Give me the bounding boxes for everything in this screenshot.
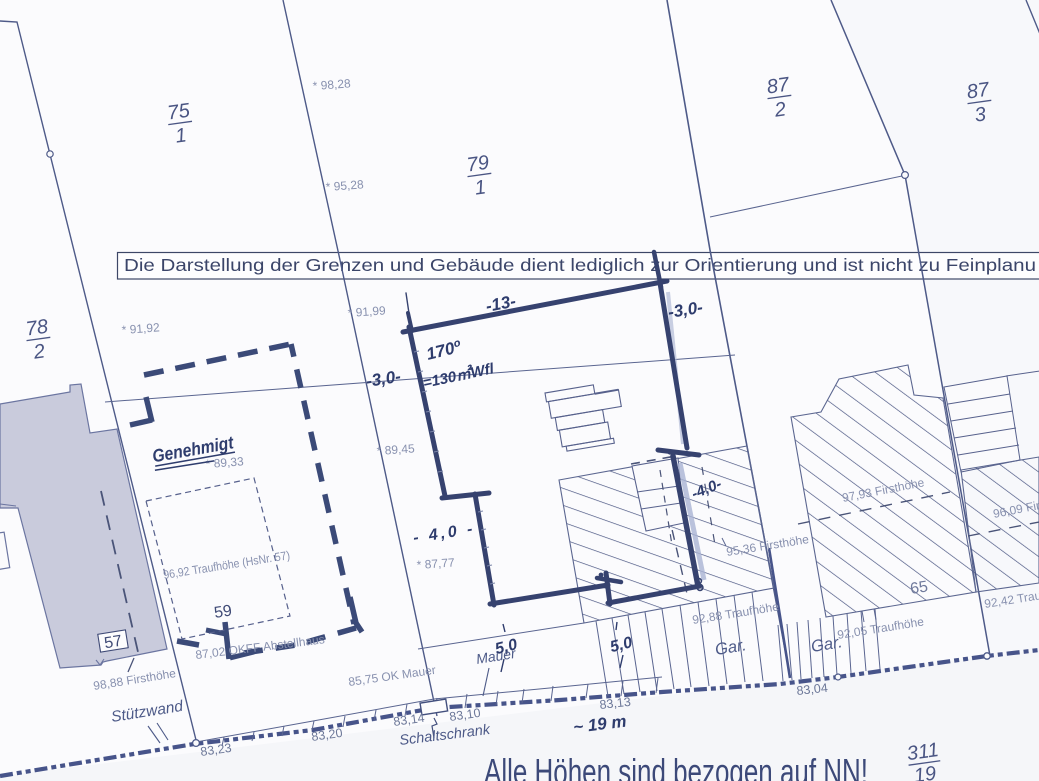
svg-text:87: 87 xyxy=(965,79,991,104)
svg-text:* 87,77: * 87,77 xyxy=(416,555,455,572)
svg-text:59: 59 xyxy=(213,602,233,622)
svg-text:* 95,28: * 95,28 xyxy=(325,177,364,194)
svg-text:* 89,45: * 89,45 xyxy=(376,441,415,458)
svg-text:57: 57 xyxy=(103,633,123,653)
svg-text:* 98,28: * 98,28 xyxy=(312,76,351,93)
svg-text:* 91,99: * 91,99 xyxy=(347,303,386,320)
svg-text:79: 79 xyxy=(465,152,490,177)
svg-text:65: 65 xyxy=(909,578,929,598)
svg-text:Die Darstellung der Grenzen un: Die Darstellung der Grenzen und Gebäude … xyxy=(124,255,1036,275)
svg-text:75: 75 xyxy=(166,100,192,125)
svg-text:19: 19 xyxy=(913,763,938,781)
svg-text:87: 87 xyxy=(765,74,791,99)
svg-text:* 91,92: * 91,92 xyxy=(121,320,160,337)
svg-text:78: 78 xyxy=(24,316,49,341)
svg-text:Alle Höhen sind bezogen auf NN: Alle Höhen sind bezogen auf NN! xyxy=(484,751,868,781)
